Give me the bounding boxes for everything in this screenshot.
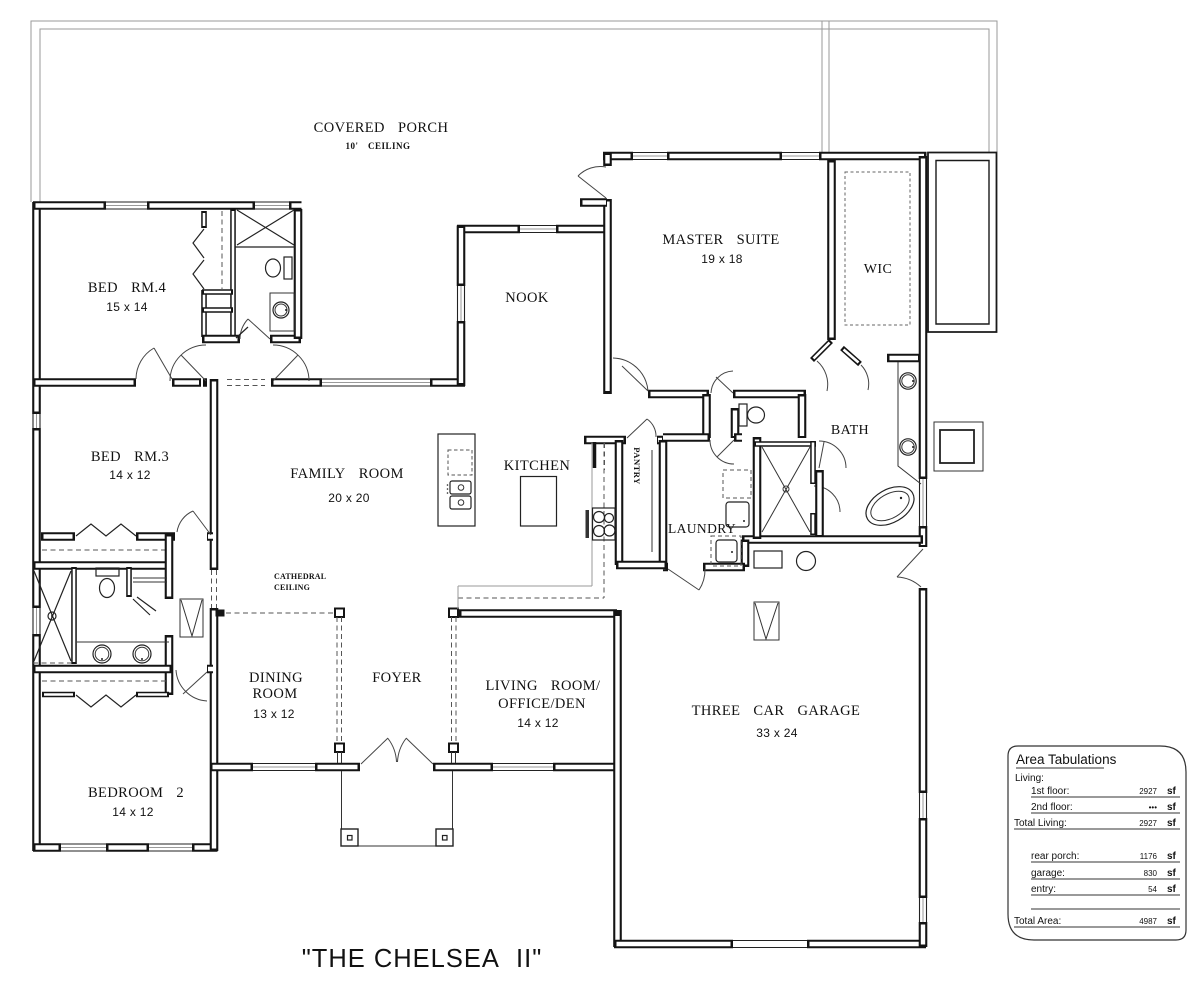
svg-text:FAMILY ROOM: FAMILY ROOM xyxy=(290,466,404,482)
svg-text:Living:: Living: xyxy=(1015,773,1044,784)
svg-text:FOYER: FOYER xyxy=(372,670,422,686)
svg-text:4987: 4987 xyxy=(1139,917,1157,926)
svg-text:sf: sf xyxy=(1167,884,1177,895)
svg-text:ROOM: ROOM xyxy=(252,686,297,702)
svg-text:CATHEDRAL: CATHEDRAL xyxy=(274,572,326,581)
svg-text:CEILING: CEILING xyxy=(274,583,310,592)
svg-text:LAUNDRY: LAUNDRY xyxy=(668,521,736,536)
svg-text:54: 54 xyxy=(1148,885,1157,894)
svg-text:NOOK: NOOK xyxy=(505,290,549,306)
svg-text:OFFICE/DEN: OFFICE/DEN xyxy=(498,696,586,712)
svg-text:sf: sf xyxy=(1167,818,1177,829)
svg-text:2927: 2927 xyxy=(1139,787,1157,796)
svg-text:sf: sf xyxy=(1167,916,1177,927)
svg-text:Total Area:: Total Area: xyxy=(1014,916,1061,927)
svg-text:entry:: entry: xyxy=(1031,884,1056,895)
svg-text:KITCHEN: KITCHEN xyxy=(504,458,571,474)
svg-text:19 x 18: 19 x 18 xyxy=(701,252,742,266)
svg-text:DINING: DINING xyxy=(249,670,303,686)
svg-text:14 x 12: 14 x 12 xyxy=(517,716,558,730)
svg-text:33 x 24: 33 x 24 xyxy=(756,726,797,740)
svg-text:2nd floor:: 2nd floor: xyxy=(1031,802,1073,813)
svg-text:WIC: WIC xyxy=(864,262,892,277)
svg-text:13 x 12: 13 x 12 xyxy=(253,707,294,721)
svg-text:"THE CHELSEA II": "THE CHELSEA II" xyxy=(302,945,543,973)
svg-text:LIVING ROOM/: LIVING ROOM/ xyxy=(486,678,601,694)
svg-text:830: 830 xyxy=(1144,869,1158,878)
svg-text:1st floor:: 1st floor: xyxy=(1031,786,1069,797)
svg-text:garage:: garage: xyxy=(1031,868,1065,879)
svg-text:14 x 12: 14 x 12 xyxy=(112,805,153,819)
svg-text:1176: 1176 xyxy=(1140,852,1158,861)
svg-text:15 x 14: 15 x 14 xyxy=(106,300,147,314)
svg-text:BEDROOM 2: BEDROOM 2 xyxy=(88,785,184,801)
svg-text:20 x 20: 20 x 20 xyxy=(328,491,369,505)
svg-text:BATH: BATH xyxy=(831,423,869,438)
svg-text:sf: sf xyxy=(1167,802,1177,813)
svg-text:10' CEILING: 10' CEILING xyxy=(345,141,410,151)
svg-text:THREE CAR GARAGE: THREE CAR GARAGE xyxy=(692,703,861,719)
svg-text:MASTER SUITE: MASTER SUITE xyxy=(662,232,779,248)
svg-text:sf: sf xyxy=(1167,851,1177,862)
svg-text:rear porch:: rear porch: xyxy=(1031,851,1079,862)
svg-text:BED RM.3: BED RM.3 xyxy=(91,449,169,465)
svg-text:Area Tabulations: Area Tabulations xyxy=(1016,752,1117,767)
svg-text:sf: sf xyxy=(1167,786,1177,797)
svg-text:sf: sf xyxy=(1167,868,1177,879)
svg-text:BED RM.4: BED RM.4 xyxy=(88,280,167,296)
svg-text:PANTRY: PANTRY xyxy=(632,447,642,485)
svg-text:Total Living:: Total Living: xyxy=(1014,818,1067,829)
svg-text:COVERED PORCH: COVERED PORCH xyxy=(314,120,449,136)
svg-text:14 x 12: 14 x 12 xyxy=(109,468,150,482)
svg-text:•••: ••• xyxy=(1149,803,1158,812)
svg-text:2927: 2927 xyxy=(1139,819,1157,828)
